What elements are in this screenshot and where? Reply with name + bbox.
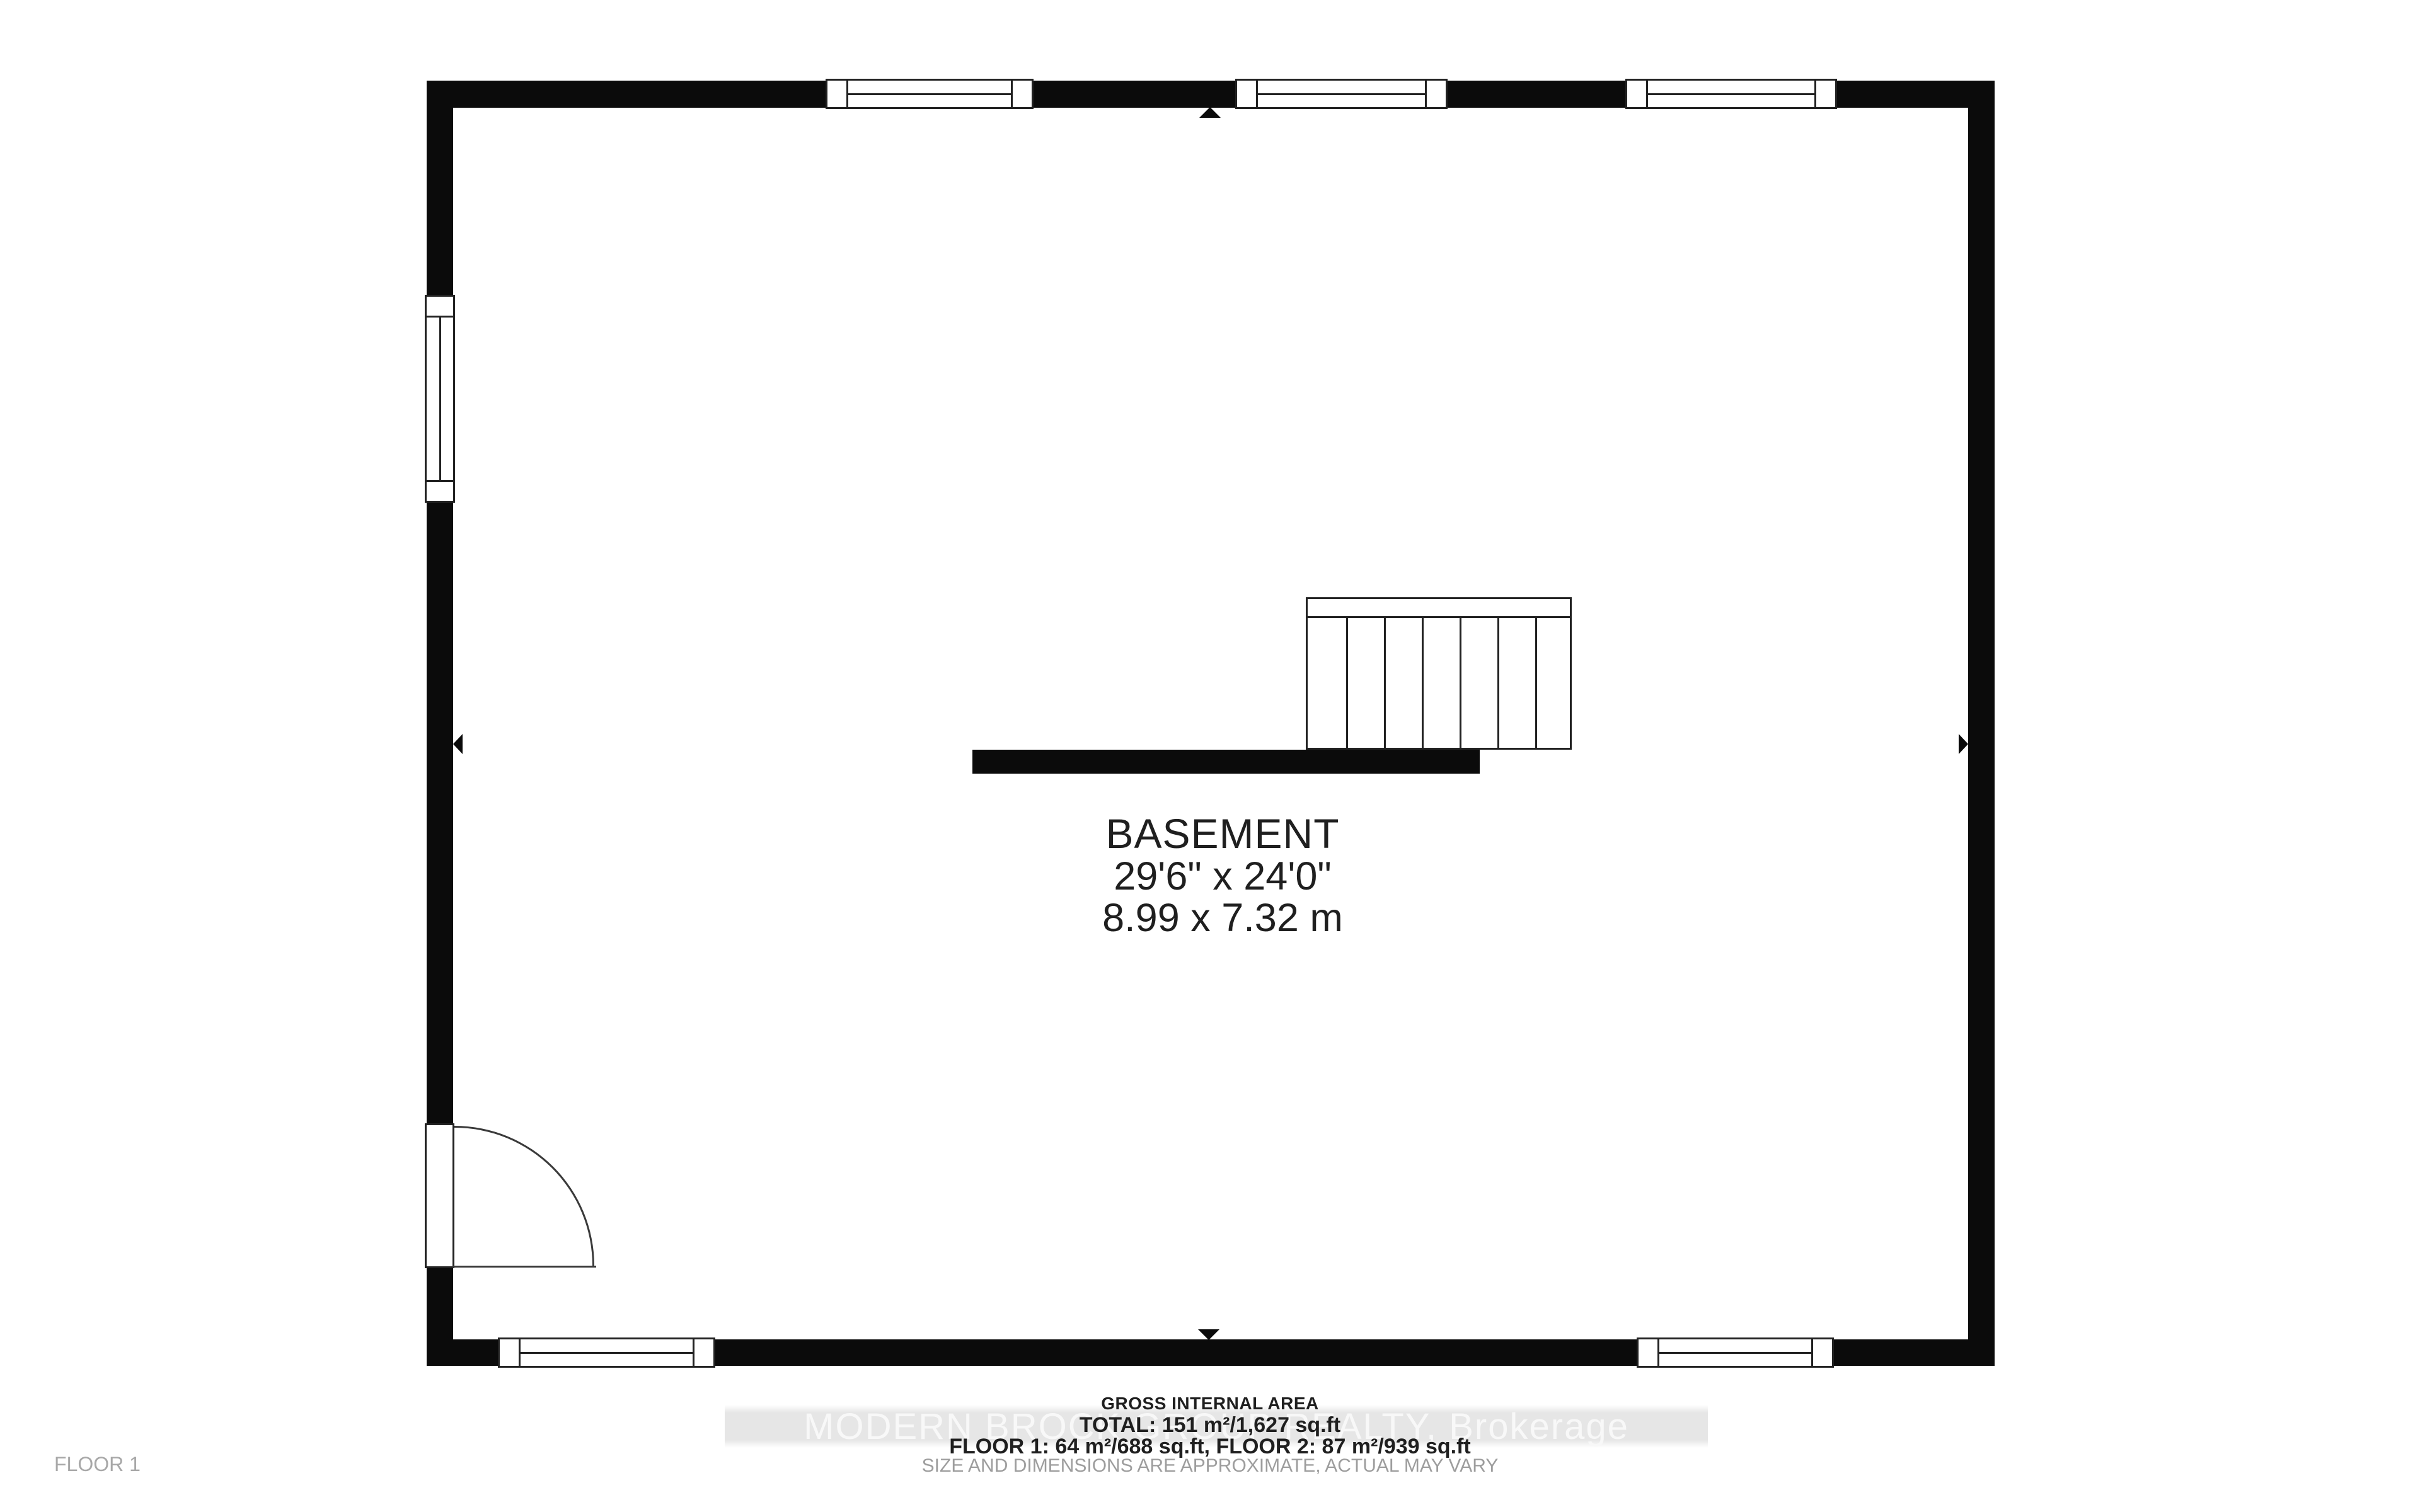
gross-internal-area-title: GROSS INTERNAL AREA	[0, 1394, 2420, 1414]
stair-tread-line	[1535, 616, 1537, 748]
wall-arrow-down-icon	[1198, 1329, 1219, 1340]
window-pane-line	[439, 316, 441, 482]
window-pane-line	[1646, 93, 1816, 95]
window-left	[425, 295, 455, 503]
window-pane-line	[1657, 1352, 1813, 1354]
staircase	[1306, 597, 1572, 750]
window-top-middle	[1235, 79, 1448, 109]
door-swing-arc	[454, 1126, 594, 1266]
disclaimer-text: SIZE AND DIMENSIONS ARE APPROXIMATE, ACT…	[0, 1455, 2420, 1477]
room-name: BASEMENT	[907, 813, 1538, 854]
window-bottom-right	[1637, 1337, 1834, 1368]
window-top-left	[826, 79, 1034, 109]
window-bottom-left	[498, 1337, 715, 1368]
stair-tread-line	[1384, 616, 1386, 748]
wall-arrow-up-icon	[1199, 107, 1221, 118]
door-opening	[425, 1123, 454, 1268]
room-dimensions-imperial: 29'6" x 24'0"	[907, 857, 1538, 896]
room-dimensions-metric: 8.99 x 7.32 m	[907, 898, 1538, 938]
floor-label: FLOOR 1	[54, 1453, 141, 1476]
window-pane-line	[1256, 93, 1427, 95]
wall-arrow-left-icon	[453, 734, 463, 754]
stair-tread-line	[1460, 616, 1461, 748]
stair-tread-line	[1422, 616, 1424, 748]
stair-tread-line	[1497, 616, 1499, 748]
window-top-right	[1625, 79, 1837, 109]
door-leaf	[452, 1266, 596, 1268]
wall-arrow-right-icon	[1959, 734, 1968, 754]
stair-tread-line	[1346, 616, 1348, 748]
window-pane-line	[519, 1352, 694, 1354]
interior-half-wall	[972, 750, 1480, 774]
wall-right	[1968, 81, 1995, 1366]
window-pane-line	[846, 93, 1013, 95]
floor-plan-canvas: BASEMENT 29'6" x 24'0" 8.99 x 7.32 m MOD…	[0, 0, 2420, 1512]
